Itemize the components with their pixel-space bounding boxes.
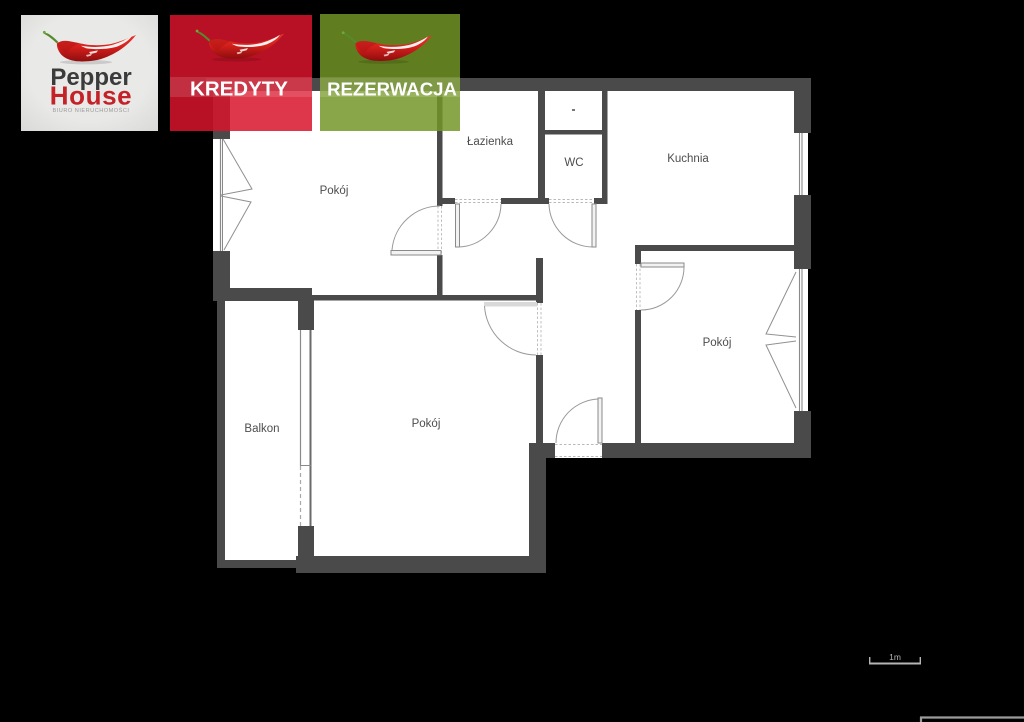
- svg-text:Balkon: Balkon: [244, 423, 279, 435]
- svg-text:WC: WC: [564, 157, 583, 169]
- svg-text:REZERWACJA: REZERWACJA: [327, 79, 457, 100]
- svg-text:House: House: [50, 81, 132, 111]
- svg-text:Pokój: Pokój: [703, 337, 732, 349]
- svg-text:Pokój: Pokój: [412, 418, 441, 430]
- svg-text:KREDYTY: KREDYTY: [190, 78, 288, 101]
- svg-text:Pokój: Pokój: [320, 185, 349, 197]
- svg-text:Łazienka: Łazienka: [467, 136, 514, 148]
- svg-text:BIURO NIERUCHOMOŚCI: BIURO NIERUCHOMOŚCI: [53, 106, 130, 114]
- svg-text:Kuchnia: Kuchnia: [667, 153, 709, 165]
- svg-text:1m: 1m: [889, 652, 901, 662]
